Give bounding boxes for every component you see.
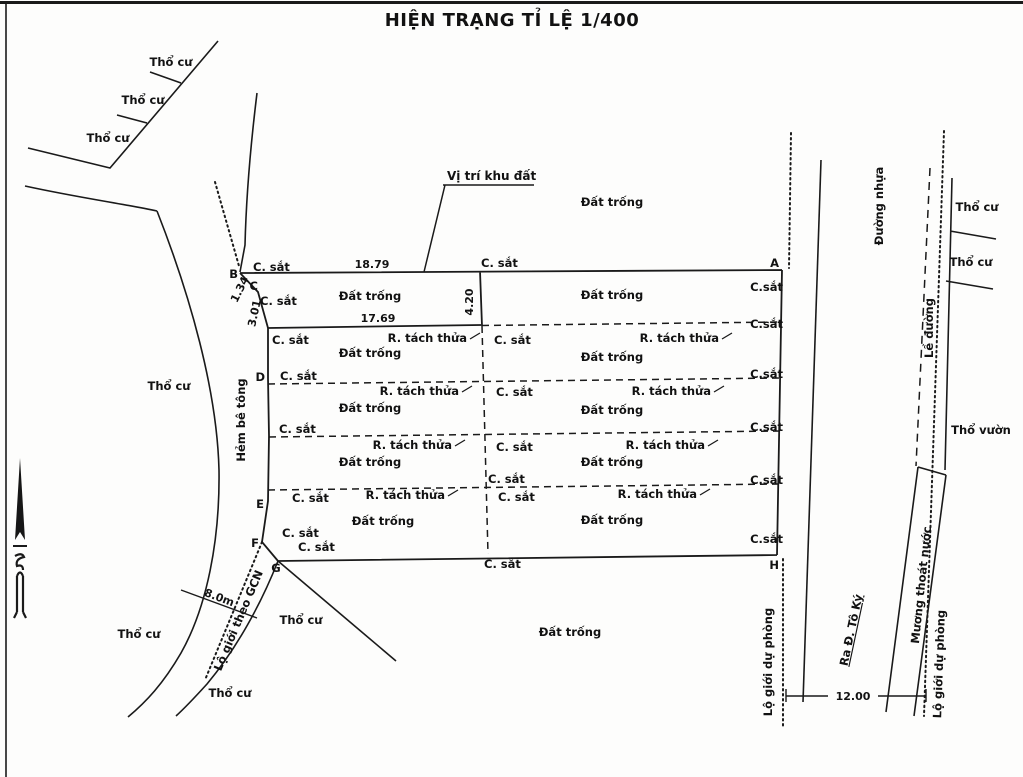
road-label-lo-gioi-du-phong: Lộ giới dự phòng (761, 608, 775, 716)
point-h: H (769, 558, 779, 572)
point-g: G (271, 561, 280, 575)
area-label-dat-trong: Đất trống (581, 455, 643, 469)
right-road-corridor: Đường nhựa Lề đường Thổ cư Thổ cư Thổ vư… (761, 131, 1011, 726)
point-e: E (256, 497, 264, 511)
fence-label-c-sat: C.sắt (750, 317, 783, 331)
fence-label-c-sat: C. sắt (292, 491, 329, 505)
area-label-dat-trong: Đất trống (339, 346, 401, 360)
split-label-r-tach-thua: R. tách thửa (373, 438, 452, 452)
road-label-le-duong: Lề đường (922, 298, 936, 358)
area-label-tho-cu: Thổ cư (118, 626, 162, 641)
area-label-dat-trong: Đất trống (339, 401, 401, 415)
parcel-solid-boundaries (240, 270, 782, 561)
fence-label-c-sat: C. sắt (279, 422, 316, 436)
alley-dotted-upper (215, 182, 239, 266)
site-callout: Vị trí khu đất Đất trống (424, 169, 643, 272)
area-label-tho-cu: Thổ cư (122, 92, 166, 107)
fence-label-c-sat: C. sắt (494, 333, 531, 347)
dim-road-width: 12.00 (836, 690, 871, 703)
split-label-r-tach-thua: R. tách thửa (366, 488, 445, 502)
dim-alley-width: 8.0m (202, 586, 236, 609)
fence-label-c-sat: C.sắt (750, 420, 783, 434)
fence-label-c-sat: C. sắt (498, 490, 535, 504)
fence-label-c-sat: C.sắt (750, 280, 783, 294)
area-label-dat-trong: Đất trống (339, 455, 401, 469)
survey-drawing: HIỆN TRẠNG TỈ LỆ 1/400 Thổ cư Thổ cư Thổ… (0, 0, 1023, 777)
area-label-dat-trong: Đất trống (581, 513, 643, 527)
fence-label-c-sat: C. sắt (298, 540, 335, 554)
fence-label-c-sat: C. sắt (488, 472, 525, 486)
area-label-tho-cu: Thổ cư (150, 54, 194, 69)
survey-sheet: HIỆN TRẠNG TỈ LỆ 1/400 Thổ cư Thổ cư Thổ… (0, 0, 1023, 777)
split-label-r-tach-thua: R. tách thửa (626, 438, 705, 452)
area-label-dat-trong: Đất trống (352, 514, 414, 528)
area-label-dat-trong: Đất trống (581, 403, 643, 417)
parcel-grid: A B C D E F G H 18.79 17.69 4.20 1.34 3.… (228, 256, 783, 575)
area-label-dat-trong: Đất trống (339, 289, 401, 303)
area-label-tho-cu: Thổ cư (280, 612, 324, 627)
split-label-r-tach-thua: R. tách thửa (640, 331, 719, 345)
north-arrow-icon (13, 458, 27, 618)
area-label-dat-trong: Đất trống (581, 288, 643, 302)
alley-right-edge-upper (240, 93, 257, 272)
neighborhood-bottom-left: Lộ giới theo GCN Thổ cư Thổ cư Thổ cư (118, 542, 396, 700)
split-label-r-tach-thua: R. tách thửa (632, 384, 711, 398)
road-reserve-dotted-left (783, 133, 791, 726)
fence-label-c-sat: C.sắt (750, 532, 783, 546)
road-label-duong-nhua: Đường nhựa (872, 167, 886, 245)
dim-edge-second: 17.69 (361, 312, 396, 325)
point-d: D (255, 370, 265, 384)
area-label-tho-cu: Thổ cư (87, 130, 131, 145)
road-label-lo-gioi-theo-gcn: Lộ giới theo GCN (211, 568, 266, 673)
fence-label-c-sat: C.sắt (750, 367, 783, 381)
neighborhood-top-left: Thổ cư Thổ cư Thổ cư (28, 41, 218, 168)
fence-label-c-sat: C. sắt (484, 557, 521, 571)
dim-width-center: 4.20 (463, 288, 476, 315)
dim-edge-top: 18.79 (355, 258, 390, 271)
split-label-r-tach-thua: R. tách thửa (388, 331, 467, 345)
point-a: A (770, 256, 779, 270)
fence-label-c-sat: C. sắt (282, 526, 319, 540)
area-label-tho-cu: Thổ cư (950, 254, 994, 269)
road-label-hem-be-tong: Hẻm bê tông (234, 378, 248, 461)
fence-label-c-sat: C. sắt (260, 294, 297, 308)
fence-label-c-sat: C. sắt (481, 256, 518, 270)
area-label-dat-trong: Đất trống (581, 195, 643, 209)
fence-label-c-sat: C. sắt (280, 369, 317, 383)
point-f: F (251, 536, 259, 550)
area-label-tho-cu: Thổ cư (956, 199, 1000, 214)
area-label-tho-vuon: Thổ vườn (951, 422, 1011, 437)
callout-vi-tri-khu-dat: Vị trí khu đất (447, 169, 536, 183)
road-label-muong-thoat-nuoc: Mương thoát nước (908, 525, 934, 644)
fence-label-c-sat: C. sắt (272, 333, 309, 347)
page-title: HIỆN TRẠNG TỈ LỆ 1/400 (385, 8, 640, 31)
fence-label-c-sat: C.sắt (750, 473, 783, 487)
fence-label-c-sat: C. sắt (496, 440, 533, 454)
road-label-lo-gioi-du-phong: Lộ giới dự phòng (930, 610, 948, 719)
road-label-ra-duong-to-ky: Ra Đ. Tô Ký (837, 592, 866, 667)
neighbor-diagonal-line (278, 561, 396, 661)
road-edge-solid (803, 160, 821, 702)
area-label-tho-cu: Thổ cư (209, 685, 253, 700)
split-label-r-tach-thua: R. tách thửa (618, 487, 697, 501)
fence-label-c-sat: C. sắt (496, 385, 533, 399)
area-label-tho-cu: Thổ cư (148, 378, 192, 393)
fence-label-c-sat: C. sắt (253, 260, 290, 274)
area-label-dat-trong: Đất trống (539, 625, 601, 639)
area-label-dat-trong: Đất trống (581, 350, 643, 364)
split-label-r-tach-thua: R. tách thửa (380, 384, 459, 398)
